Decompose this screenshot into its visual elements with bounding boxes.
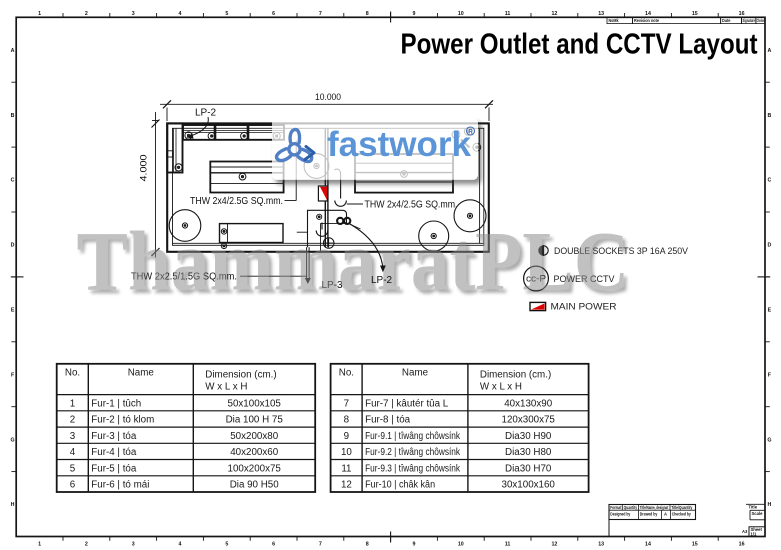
- svg-text:C: C: [767, 178, 771, 184]
- svg-text:Fur-9.1 | tîwâng chôwsínk: Fur-9.1 | tîwâng chôwsínk: [365, 431, 460, 442]
- svg-text:Fur-7 | kâutér tûa L: Fur-7 | kâutér tûa L: [365, 398, 449, 409]
- svg-text:16: 16: [739, 11, 745, 17]
- svg-text:6: 6: [70, 480, 76, 491]
- svg-text:40x130x90: 40x130x90: [504, 398, 552, 409]
- svg-text:30x100x160: 30x100x160: [502, 480, 556, 491]
- svg-text:40x200x60: 40x200x60: [230, 447, 278, 458]
- svg-text:Fur-9.2 | tîwâng chôwsínk: Fur-9.2 | tîwâng chôwsínk: [365, 447, 460, 458]
- svg-text:5: 5: [225, 542, 228, 548]
- svg-text:THW 2x4/2.5G SQ.mm.: THW 2x4/2.5G SQ.mm.: [190, 196, 283, 207]
- svg-text:1: 1: [70, 398, 75, 409]
- svg-text:120x300x75: 120x300x75: [502, 415, 556, 426]
- svg-text:A: A: [11, 48, 15, 54]
- svg-text:14: 14: [645, 542, 651, 548]
- svg-text:LP-2: LP-2: [195, 108, 217, 119]
- svg-text:Name: Name: [128, 368, 155, 379]
- svg-text:4.000: 4.000: [139, 154, 149, 181]
- svg-text:15: 15: [692, 542, 698, 548]
- svg-text:13: 13: [598, 542, 604, 548]
- svg-text:Fur-2 | tó klom: Fur-2 | tó klom: [91, 415, 154, 426]
- svg-text:13: 13: [598, 11, 604, 17]
- svg-text:THW 2x4/2.5G SQ.mm.: THW 2x4/2.5G SQ.mm.: [365, 200, 458, 211]
- svg-text:2: 2: [85, 542, 88, 548]
- svg-text:4: 4: [179, 11, 182, 17]
- svg-text:W x L x H: W x L x H: [205, 382, 247, 393]
- svg-text:C: C: [11, 178, 15, 184]
- svg-text:4: 4: [179, 542, 182, 548]
- svg-text:6: 6: [272, 542, 275, 548]
- svg-text:50x100x105: 50x100x105: [228, 398, 282, 409]
- svg-text:R: R: [468, 129, 473, 135]
- svg-text:Dia30 H70: Dia30 H70: [505, 463, 552, 474]
- svg-text:7: 7: [344, 398, 349, 409]
- svg-text:10: 10: [458, 11, 464, 17]
- svg-text:Dimension (cm.): Dimension (cm.): [480, 370, 551, 381]
- svg-text:11: 11: [505, 542, 511, 548]
- svg-text:Date: Date: [722, 18, 731, 23]
- svg-text:D: D: [767, 243, 771, 249]
- svg-text:10: 10: [458, 542, 464, 548]
- svg-text:Revision note: Revision note: [634, 18, 660, 23]
- svg-text:12: 12: [551, 11, 557, 17]
- svg-text:Fur-5 | tóa: Fur-5 | tóa: [91, 463, 137, 474]
- svg-text:Drawed by: Drawed by: [640, 512, 658, 517]
- svg-text:Dia30 H90: Dia30 H90: [505, 431, 552, 442]
- svg-text:12: 12: [341, 480, 352, 491]
- svg-text:Scale: Scale: [752, 511, 764, 516]
- svg-text:No.: No.: [339, 368, 354, 379]
- svg-text:Checked: Checked: [757, 18, 765, 23]
- svg-text:Fur-10 | châk kân: Fur-10 | châk kân: [365, 480, 435, 491]
- svg-text:E: E: [11, 308, 15, 314]
- svg-text:Dimension (cm.): Dimension (cm.): [205, 370, 276, 381]
- svg-text:Name: Name: [402, 368, 429, 379]
- svg-text:D: D: [11, 243, 15, 249]
- svg-text:Fur-9.3 | tîwâng chôwsínk: Fur-9.3 | tîwâng chôwsínk: [365, 463, 460, 474]
- svg-text:10: 10: [341, 447, 352, 458]
- svg-text:B: B: [11, 113, 15, 119]
- svg-text:15: 15: [692, 11, 698, 17]
- svg-text:W x L x H: W x L x H: [480, 382, 522, 393]
- svg-text:2: 2: [85, 11, 88, 17]
- svg-text:7: 7: [319, 11, 322, 17]
- svg-text:Dia 100 H 75: Dia 100 H 75: [226, 415, 284, 426]
- svg-text:Title/Name, designat: Title/Name, designat: [640, 505, 669, 510]
- svg-text:B: B: [767, 113, 771, 119]
- svg-text:fastwork: fastwork: [327, 124, 471, 164]
- svg-text:G: G: [11, 437, 15, 443]
- svg-text:3: 3: [70, 431, 76, 442]
- svg-text:1/1: 1/1: [751, 532, 757, 537]
- svg-text:2: 2: [70, 415, 75, 426]
- svg-text:8: 8: [366, 11, 369, 17]
- svg-text:Fur-6 | tó mái: Fur-6 | tó mái: [91, 480, 149, 491]
- svg-text:A: A: [664, 512, 667, 517]
- svg-text:1: 1: [38, 542, 41, 548]
- svg-text:Quantity: Quantity: [624, 505, 638, 510]
- svg-text:10.000: 10.000: [315, 92, 341, 102]
- svg-text:A3: A3: [742, 529, 748, 534]
- svg-text:9: 9: [344, 431, 349, 442]
- svg-text:7: 7: [319, 542, 322, 548]
- svg-text:8: 8: [366, 542, 369, 548]
- svg-text:A: A: [767, 48, 771, 54]
- svg-text:Title: Title: [749, 505, 758, 510]
- svg-text:Dia30 H80: Dia30 H80: [505, 447, 552, 458]
- svg-text:Fur-1 | tûch: Fur-1 | tûch: [91, 398, 141, 409]
- svg-text:Fur-8 | tóa: Fur-8 | tóa: [365, 415, 411, 426]
- svg-text:14: 14: [645, 11, 651, 17]
- svg-text:100x200x75: 100x200x75: [228, 463, 282, 474]
- svg-text:11: 11: [505, 11, 511, 17]
- svg-text:H: H: [767, 502, 771, 508]
- svg-text:5: 5: [225, 11, 228, 17]
- svg-text:8: 8: [344, 415, 350, 426]
- svg-text:9: 9: [413, 542, 416, 548]
- svg-text:4: 4: [70, 447, 76, 458]
- svg-text:Signature: Signature: [743, 18, 756, 23]
- svg-text:Dia 90 H50: Dia 90 H50: [230, 480, 280, 491]
- svg-text:1: 1: [38, 11, 41, 17]
- svg-text:Fur-3 | tóa: Fur-3 | tóa: [91, 431, 137, 442]
- svg-text:12: 12: [551, 542, 557, 548]
- svg-text:3: 3: [132, 542, 135, 548]
- svg-text:NoMk: NoMk: [609, 18, 620, 23]
- svg-text:3: 3: [132, 11, 135, 17]
- svg-text:11: 11: [341, 463, 351, 474]
- svg-text:Checked by: Checked by: [672, 512, 692, 517]
- svg-text:5: 5: [70, 463, 76, 474]
- svg-text:H: H: [11, 502, 15, 508]
- svg-text:Power Outlet and CCTV Layout: Power Outlet and CCTV Layout: [401, 29, 758, 61]
- svg-text:No.: No.: [65, 368, 80, 379]
- svg-text:ThammaratPLC: ThammaratPLC: [77, 215, 630, 309]
- svg-text:6: 6: [272, 11, 275, 17]
- svg-text:9: 9: [413, 11, 416, 17]
- svg-text:Designed by: Designed by: [610, 512, 631, 517]
- svg-text:16: 16: [739, 542, 745, 548]
- svg-text:G: G: [767, 437, 771, 443]
- svg-text:50x200x80: 50x200x80: [230, 431, 278, 442]
- svg-text:Fur-4 | tóa: Fur-4 | tóa: [91, 447, 137, 458]
- svg-text:LP-2: LP-2: [371, 275, 393, 286]
- svg-text:Title/Quantity: Title/Quantity: [671, 505, 693, 510]
- svg-text:Format: Format: [610, 505, 621, 510]
- svg-text:E: E: [768, 308, 772, 314]
